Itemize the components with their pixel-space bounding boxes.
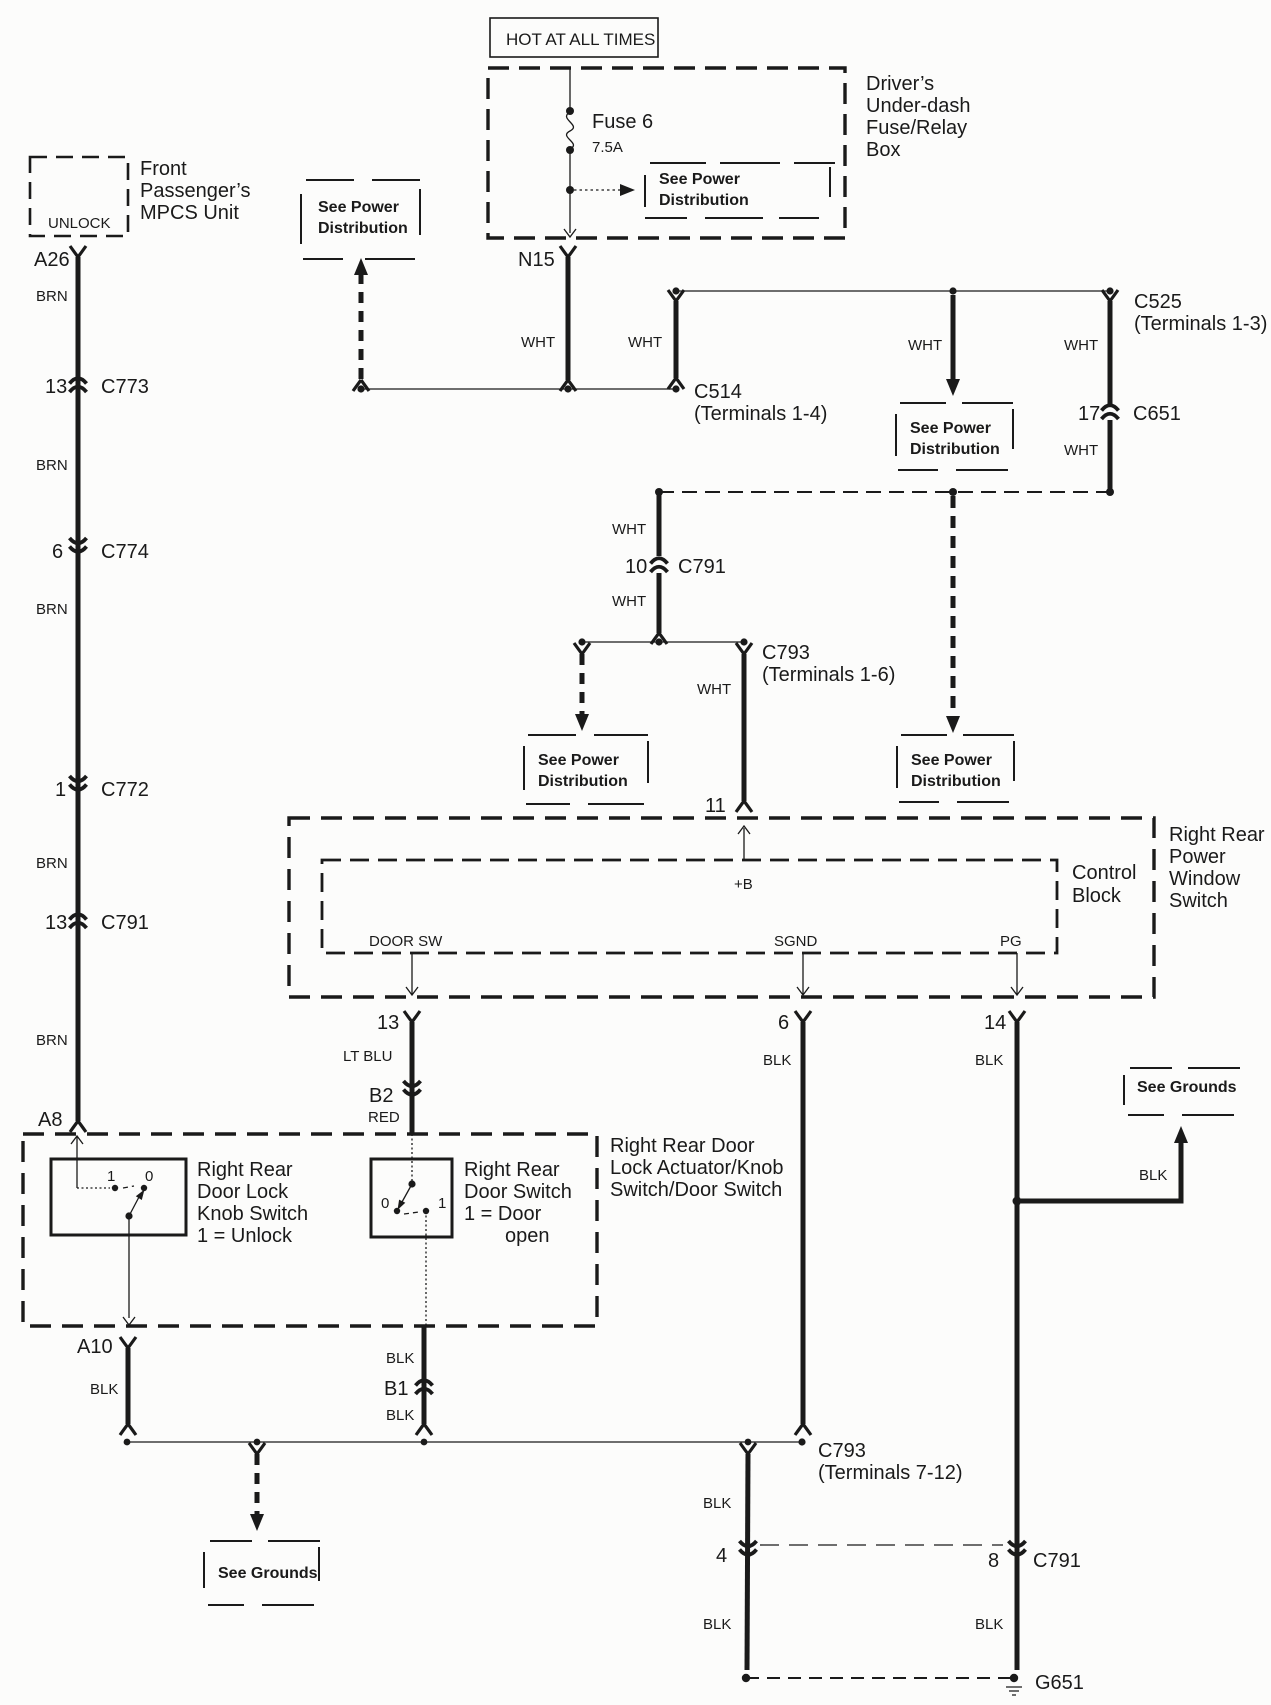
svg-text:B1: B1 bbox=[384, 1378, 408, 1400]
svg-text:BRN: BRN bbox=[36, 601, 68, 618]
svg-text:4: 4 bbox=[716, 1545, 727, 1567]
svg-text:BRN: BRN bbox=[36, 457, 68, 474]
svg-text:C791: C791 bbox=[101, 912, 149, 934]
svg-text:BRN: BRN bbox=[36, 288, 68, 305]
svg-text:C773: C773 bbox=[101, 376, 149, 398]
svg-text:10: 10 bbox=[625, 556, 647, 578]
svg-text:Right RearDoor LockKnob Switch: Right RearDoor LockKnob Switch1 = Unlock bbox=[197, 1159, 308, 1247]
svg-text:Distribution: Distribution bbox=[538, 773, 628, 790]
svg-text:0: 0 bbox=[381, 1195, 389, 1212]
svg-text:C791: C791 bbox=[1033, 1550, 1081, 1572]
svg-text:Fuse 6: Fuse 6 bbox=[592, 111, 653, 133]
svg-text:WHT: WHT bbox=[1064, 442, 1098, 459]
svg-text:BLK: BLK bbox=[703, 1616, 731, 1633]
svg-text:See Grounds: See Grounds bbox=[1137, 1079, 1237, 1096]
svg-text:7.5A: 7.5A bbox=[592, 139, 623, 156]
svg-text:WHT: WHT bbox=[521, 334, 555, 351]
svg-text:WHT: WHT bbox=[908, 337, 942, 354]
svg-text:6: 6 bbox=[52, 541, 63, 563]
svg-text:See Power: See Power bbox=[538, 752, 619, 769]
svg-text:+B: +B bbox=[734, 876, 753, 893]
svg-text:17: 17 bbox=[1078, 403, 1100, 425]
svg-text:BLK: BLK bbox=[386, 1407, 414, 1424]
svg-text:SGND: SGND bbox=[774, 933, 818, 950]
svg-text:Distribution: Distribution bbox=[659, 192, 749, 209]
svg-text:BRN: BRN bbox=[36, 855, 68, 872]
svg-text:DOOR SW: DOOR SW bbox=[369, 933, 443, 950]
svg-text:6: 6 bbox=[778, 1012, 789, 1034]
svg-text:A10: A10 bbox=[77, 1336, 113, 1358]
svg-text:0: 0 bbox=[145, 1168, 153, 1185]
svg-text:11: 11 bbox=[705, 795, 726, 817]
svg-text:A8: A8 bbox=[38, 1109, 62, 1131]
svg-text:UNLOCK: UNLOCK bbox=[48, 215, 111, 232]
svg-text:WHT: WHT bbox=[612, 521, 646, 538]
svg-text:BLK: BLK bbox=[90, 1381, 118, 1398]
svg-text:1: 1 bbox=[55, 779, 66, 801]
svg-text:WHT: WHT bbox=[612, 593, 646, 610]
svg-text:BLK: BLK bbox=[1139, 1167, 1167, 1184]
svg-text:WHT: WHT bbox=[628, 334, 662, 351]
svg-text:B2: B2 bbox=[369, 1085, 393, 1107]
svg-text:8: 8 bbox=[988, 1550, 999, 1572]
svg-text:PG: PG bbox=[1000, 933, 1022, 950]
svg-text:BLK: BLK bbox=[386, 1350, 414, 1367]
svg-text:14: 14 bbox=[984, 1012, 1006, 1034]
svg-text:BLK: BLK bbox=[975, 1052, 1003, 1069]
svg-text:WHT: WHT bbox=[697, 681, 731, 698]
svg-text:13: 13 bbox=[377, 1012, 399, 1034]
svg-text:13: 13 bbox=[45, 912, 67, 934]
svg-text:C772: C772 bbox=[101, 779, 149, 801]
svg-text:BLK: BLK bbox=[703, 1495, 731, 1512]
svg-text:N15: N15 bbox=[518, 249, 555, 271]
svg-text:Distribution: Distribution bbox=[910, 441, 1000, 458]
svg-text:Distribution: Distribution bbox=[911, 773, 1001, 790]
svg-text:WHT: WHT bbox=[1064, 337, 1098, 354]
svg-text:C651: C651 bbox=[1133, 403, 1181, 425]
svg-text:G651: G651 bbox=[1035, 1672, 1084, 1694]
svg-text:See Power: See Power bbox=[910, 420, 991, 437]
svg-text:A26: A26 bbox=[34, 249, 70, 271]
svg-text:1: 1 bbox=[438, 1195, 446, 1212]
svg-text:LT BLU: LT BLU bbox=[343, 1048, 392, 1065]
svg-text:BRN: BRN bbox=[36, 1032, 68, 1049]
svg-text:BLK: BLK bbox=[763, 1052, 791, 1069]
svg-text:HOT AT ALL TIMES: HOT AT ALL TIMES bbox=[506, 30, 655, 49]
svg-text:RED: RED bbox=[368, 1109, 400, 1126]
svg-text:13: 13 bbox=[45, 376, 67, 398]
svg-text:C774: C774 bbox=[101, 541, 149, 563]
svg-text:C791: C791 bbox=[678, 556, 726, 578]
svg-text:See Power: See Power bbox=[318, 199, 399, 216]
svg-text:See Power: See Power bbox=[659, 171, 740, 188]
svg-text:BLK: BLK bbox=[975, 1616, 1003, 1633]
svg-text:Distribution: Distribution bbox=[318, 220, 408, 237]
svg-text:See Power: See Power bbox=[911, 752, 992, 769]
svg-text:See Grounds: See Grounds bbox=[218, 1565, 318, 1582]
svg-text:1: 1 bbox=[107, 1168, 115, 1185]
